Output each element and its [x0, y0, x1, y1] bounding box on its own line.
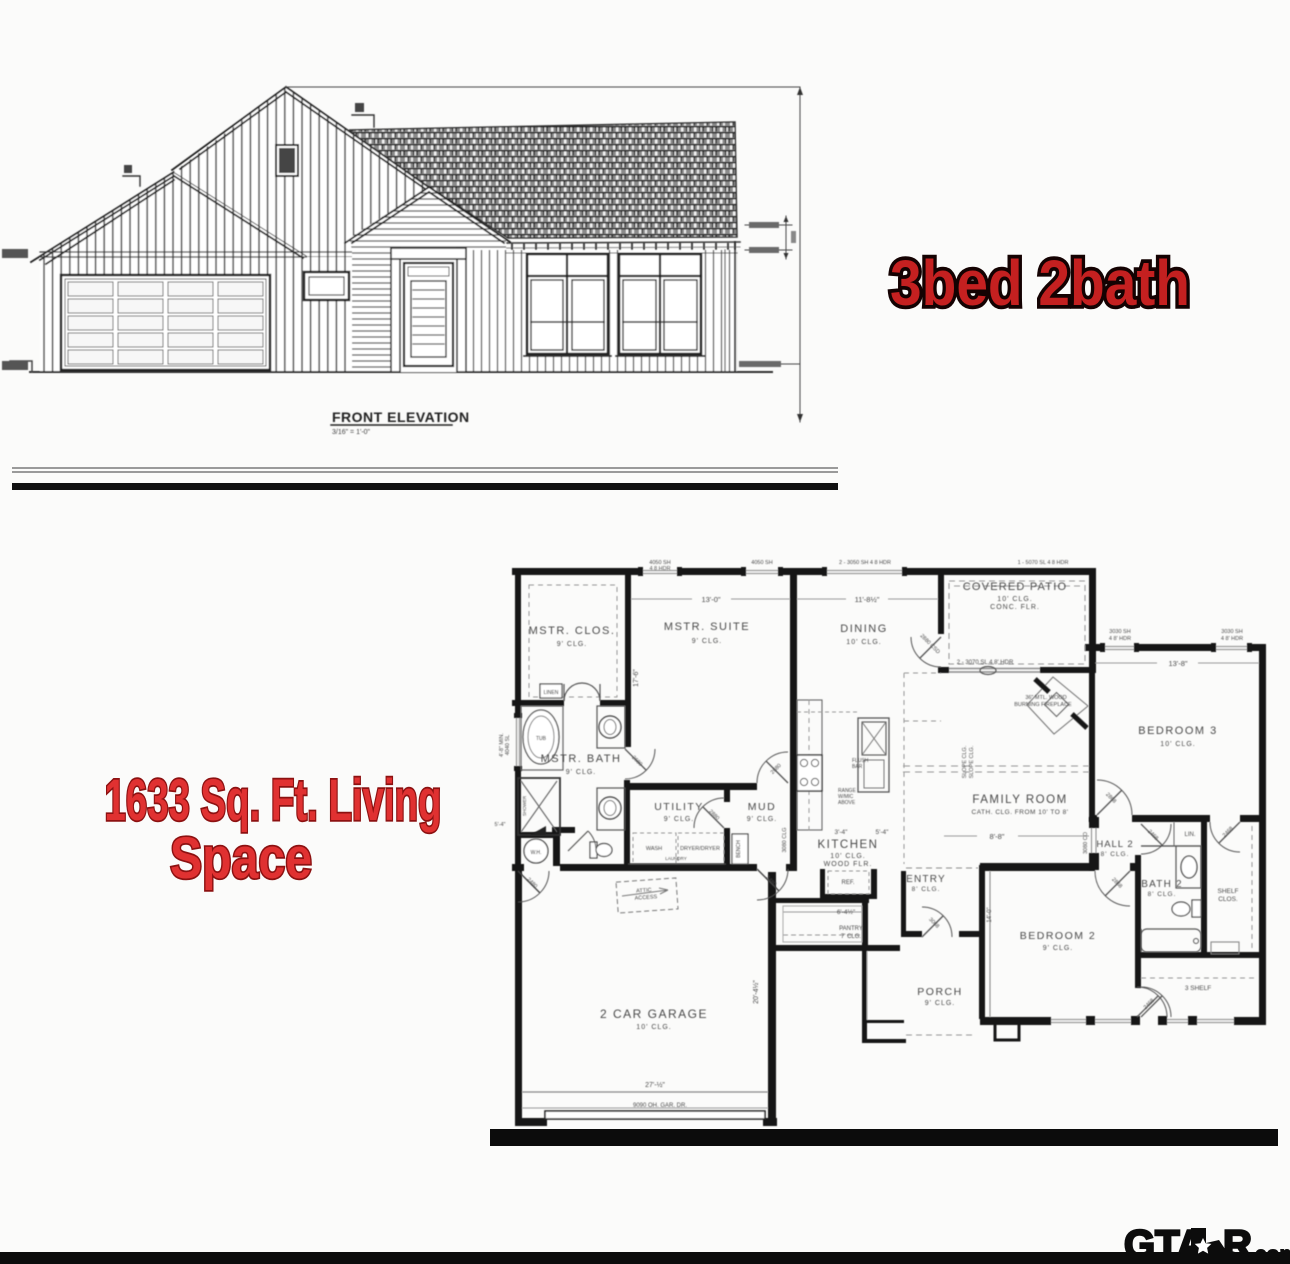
svg-text:1633 Sq. Ft. Living: 1633 Sq. Ft. Living	[105, 768, 442, 833]
svg-text:2 - 3050 SH 4 8 HDR: 2 - 3050 SH 4 8 HDR	[839, 560, 891, 566]
svg-text:20'-4½": 20'-4½"	[752, 980, 760, 1004]
svg-text:BAR: BAR	[852, 764, 863, 770]
svg-text:6'-4½": 6'-4½"	[837, 908, 856, 916]
svg-text:1 - 5070 SL 4 8 HDR: 1 - 5070 SL 4 8 HDR	[1018, 560, 1069, 566]
svg-text:W.H.: W.H.	[531, 850, 542, 856]
svg-text:2 - 3070 SL 4 8' HDR: 2 - 3070 SL 4 8' HDR	[957, 660, 1014, 666]
svg-text:10' CLG.: 10' CLG.	[636, 1024, 671, 1031]
svg-text:4050 SH: 4050 SH	[751, 560, 772, 566]
svg-text:CLOS.: CLOS.	[1218, 896, 1238, 903]
svg-text:13'-0": 13'-0"	[701, 595, 720, 604]
svg-text:8' CLG.: 8' CLG.	[1148, 891, 1177, 898]
svg-text:27'-½": 27'-½"	[645, 1081, 665, 1089]
svg-text:13'-8": 13'-8"	[1168, 659, 1187, 668]
svg-text:3/16" = 1'-0": 3/16" = 1'-0"	[332, 429, 371, 436]
svg-text:LINEN: LINEN	[544, 690, 559, 696]
svg-text:9090 OH. GAR. DR.: 9090 OH. GAR. DR.	[633, 1103, 687, 1109]
svg-text:9' CLG.: 9' CLG.	[925, 1000, 956, 1007]
svg-text:BURNING FIREPLACE: BURNING FIREPLACE	[1014, 702, 1072, 708]
svg-text:HALL 2: HALL 2	[1096, 839, 1133, 850]
svg-text:UTILITY: UTILITY	[654, 801, 704, 813]
svg-text:10' CLG.: 10' CLG.	[830, 853, 865, 860]
svg-text:4 8 HDR: 4 8 HDR	[649, 566, 670, 572]
svg-text:ABOVE: ABOVE	[838, 800, 856, 806]
svg-text:3 SHELF: 3 SHELF	[1185, 985, 1211, 992]
svg-text:3bed 2bath: 3bed 2bath	[890, 247, 1190, 319]
svg-text:CATH. CLG. FROM 10' TO 8': CATH. CLG. FROM 10' TO 8'	[972, 809, 1069, 816]
svg-text:3080 CO: 3080 CO	[1083, 831, 1089, 854]
svg-text:10' CLG.: 10' CLG.	[1160, 741, 1195, 748]
svg-text:11'-8½": 11'-8½"	[855, 595, 880, 604]
svg-text:LIN.: LIN.	[1184, 832, 1195, 838]
svg-text:WOOD FLR.: WOOD FLR.	[824, 861, 873, 868]
svg-text:9' CLG.: 9' CLG.	[1043, 945, 1074, 952]
svg-text:MSTR. CLOS.: MSTR. CLOS.	[529, 625, 616, 637]
svg-text:17'-6": 17'-6"	[633, 669, 640, 687]
svg-text:5'-4": 5'-4"	[495, 822, 506, 828]
svg-text:BEDROOM 3: BEDROOM 3	[1138, 725, 1218, 737]
svg-text:KITCHEN: KITCHEN	[818, 839, 879, 851]
svg-text:TUB: TUB	[536, 736, 547, 742]
svg-text:R: R	[1223, 1223, 1252, 1264]
svg-text:3080 CLG: 3080 CLG	[782, 827, 788, 852]
svg-text:PANTRY: PANTRY	[839, 926, 863, 932]
svg-text:4 8' HDR: 4 8' HDR	[1109, 636, 1131, 642]
svg-text:DINING: DINING	[840, 623, 888, 635]
svg-text:CONC. FLR.: CONC. FLR.	[990, 604, 1040, 611]
svg-text:14'-0": 14'-0"	[987, 907, 993, 922]
svg-text:9' CLG.: 9' CLG.	[664, 816, 695, 823]
svg-text:MUD: MUD	[748, 801, 776, 813]
svg-text:ATTIC: ATTIC	[636, 887, 652, 894]
svg-text:COVERED PATIO: COVERED PATIO	[963, 581, 1067, 593]
svg-text:8' CLG.: 8' CLG.	[1101, 851, 1130, 858]
svg-text:7' CLG.: 7' CLG.	[841, 934, 861, 940]
svg-text:BATH 2: BATH 2	[1141, 879, 1182, 890]
svg-text:SHELF: SHELF	[1218, 888, 1239, 895]
svg-text:BEDROOM 2: BEDROOM 2	[1020, 930, 1097, 942]
svg-text:SLOPE CLG.: SLOPE CLG.	[962, 745, 968, 778]
svg-text:MSTR. BATH: MSTR. BATH	[541, 753, 622, 765]
svg-text:MSTR. SUITE: MSTR. SUITE	[664, 621, 750, 633]
svg-text:3030 SH: 3030 SH	[1221, 629, 1242, 635]
svg-text:FRONT ELEVATION: FRONT ELEVATION	[332, 409, 470, 425]
svg-text:WASH: WASH	[646, 846, 662, 852]
svg-text:.com: .com	[1249, 1243, 1290, 1264]
svg-text:LAUNDRY: LAUNDRY	[665, 856, 686, 861]
svg-text:8'-8": 8'-8"	[990, 832, 1005, 841]
svg-text:10' CLG.: 10' CLG.	[846, 639, 881, 646]
svg-text:8' CLG.: 8' CLG.	[912, 886, 941, 893]
svg-text:ENTRY: ENTRY	[906, 874, 946, 885]
svg-text:9' CLG.: 9' CLG.	[692, 638, 723, 645]
svg-text:10' CLG.: 10' CLG.	[997, 596, 1032, 603]
svg-text:5'-4": 5'-4"	[876, 829, 890, 836]
svg-text:36" MTL. WOOD: 36" MTL. WOOD	[1025, 695, 1066, 701]
svg-text:BENCH: BENCH	[736, 840, 742, 858]
svg-text:9' CLG.: 9' CLG.	[557, 641, 588, 648]
svg-text:FAMILY ROOM: FAMILY ROOM	[972, 794, 1067, 806]
svg-text:PORCH: PORCH	[917, 986, 962, 998]
svg-text:3030 SH: 3030 SH	[1109, 629, 1130, 635]
svg-text:4 8' HDR: 4 8' HDR	[1221, 636, 1243, 642]
svg-text:2 CAR GARAGE: 2 CAR GARAGE	[600, 1007, 708, 1021]
svg-text:SLOPE CLG.: SLOPE CLG.	[969, 745, 975, 778]
svg-text:DRYER/DRYER: DRYER/DRYER	[680, 846, 720, 852]
svg-text:9' CLG.: 9' CLG.	[566, 769, 597, 776]
svg-text:REF.: REF.	[841, 880, 854, 886]
svg-text:Space: Space	[170, 826, 312, 891]
svg-text:4040 SL: 4040 SL	[505, 735, 511, 756]
svg-text:3'-4": 3'-4"	[835, 829, 849, 836]
svg-text:SHOWER: SHOWER	[522, 795, 527, 816]
svg-text:9' CLG.: 9' CLG.	[747, 816, 778, 823]
